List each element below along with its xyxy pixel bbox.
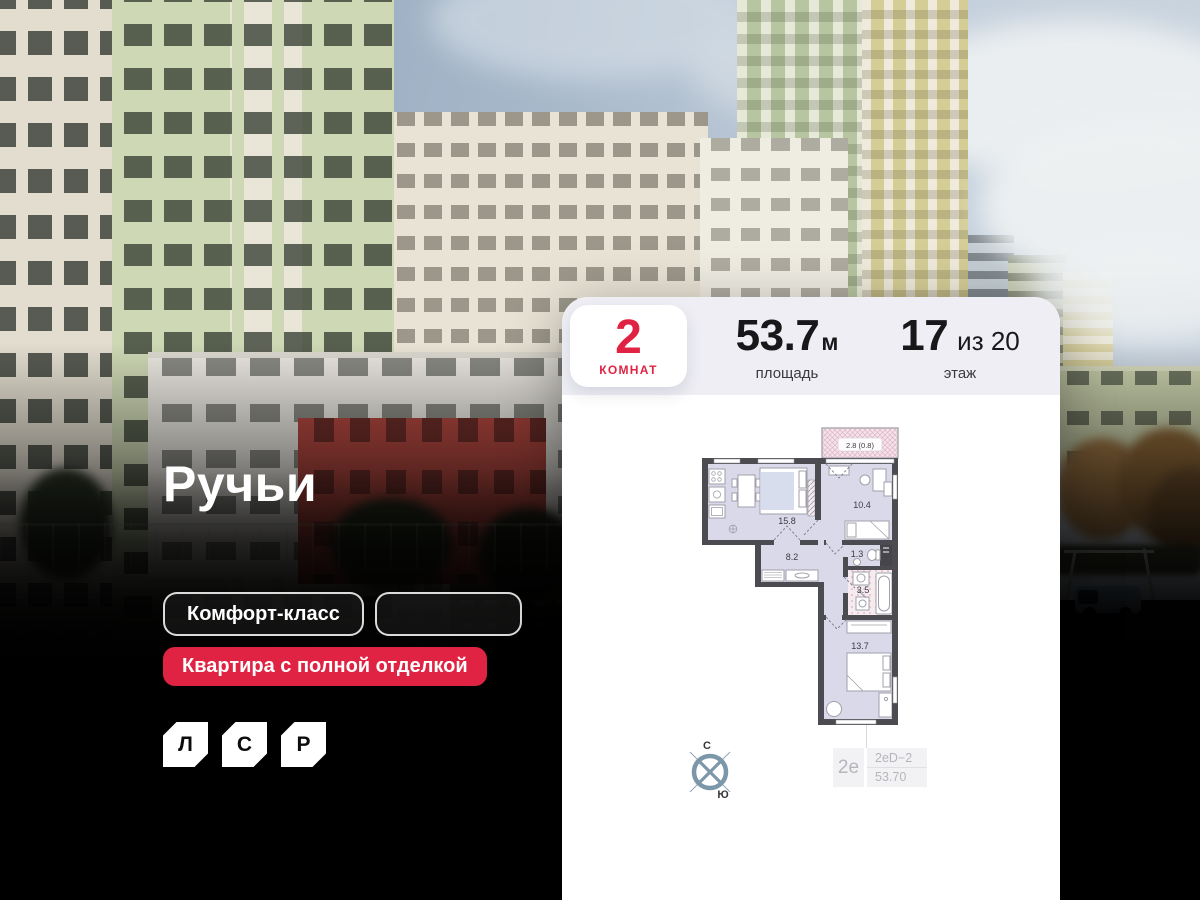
compass-south-label: Ю <box>717 789 728 800</box>
lsr-logo: Л С Р <box>163 722 326 767</box>
badge-row: Комфорт-класс <box>163 592 522 636</box>
lsr-letter: Л <box>178 733 193 757</box>
floor-plan: 2.8 (0.8) 15.8 10.4 8.2 1.3 3.5 13.7 <box>700 425 900 725</box>
lsr-logo-tile: Л <box>163 722 208 767</box>
bedroom-area-label: 10.4 <box>853 500 871 510</box>
finish-badge-label: Квартира с полной отделкой <box>182 655 468 678</box>
type-connector-line <box>866 725 867 748</box>
apartment-type-short: 2е <box>833 748 867 787</box>
rooms-chip[interactable]: 2 комнат <box>570 305 687 387</box>
floor-label: этаж <box>944 365 976 382</box>
bedroom2-area-label: 13.7 <box>851 641 869 651</box>
area-unit: м <box>821 329 838 356</box>
floor-plan-svg: 2.8 (0.8) 15.8 10.4 8.2 1.3 3.5 13.7 <box>700 425 900 725</box>
screenshot-stage: Ручьи Комфорт-класс Квартира с полной от… <box>0 0 1200 900</box>
compass-north-label: С <box>703 740 711 752</box>
lsr-letter: С <box>237 733 252 757</box>
card-header: 2 комнат 53.7 м площадь 17 из 20 этаж <box>562 297 1060 395</box>
area-stat: 53.7 м площадь <box>707 297 867 395</box>
lsr-logo-tile: С <box>222 722 267 767</box>
bathroom-area-label: 3.5 <box>857 585 870 595</box>
area-value: 53.7 <box>736 311 820 361</box>
rooms-value: 2 <box>615 315 642 361</box>
compass: С Ю <box>682 738 738 800</box>
floor-stat: 17 из 20 этаж <box>875 297 1045 395</box>
apartment-type-code: 2еD−2 <box>867 748 927 768</box>
overlay-content: Ручьи Комфорт-класс Квартира с полной от… <box>163 0 563 900</box>
class-badge-label: Комфорт-класс <box>187 603 340 626</box>
apartment-type-area: 53.70 <box>867 768 927 787</box>
wc-area-label: 1.3 <box>851 549 864 559</box>
project-title: Ручьи <box>163 455 317 513</box>
apartment-type-block: 2е 2еD−2 53.70 <box>833 748 927 787</box>
hallway-area-label: 8.2 <box>786 552 799 562</box>
area-label: площадь <box>756 365 819 382</box>
compass-icon: С Ю <box>682 738 738 800</box>
lsr-letter: Р <box>296 733 310 757</box>
class-badge: Комфорт-класс <box>163 592 364 636</box>
apartment-card: 2 комнат 53.7 м площадь 17 из 20 этаж <box>562 297 1060 900</box>
floor-value: 17 <box>900 311 948 361</box>
balcony-area-label: 2.8 (0.8) <box>846 441 874 450</box>
floor-of: из 20 <box>957 326 1020 357</box>
finish-badge: Квартира с полной отделкой <box>163 647 487 686</box>
kitchen-living-area-label: 15.8 <box>778 516 796 526</box>
rooms-label: комнат <box>599 363 658 377</box>
empty-badge <box>375 592 522 636</box>
lsr-logo-tile: Р <box>281 722 326 767</box>
